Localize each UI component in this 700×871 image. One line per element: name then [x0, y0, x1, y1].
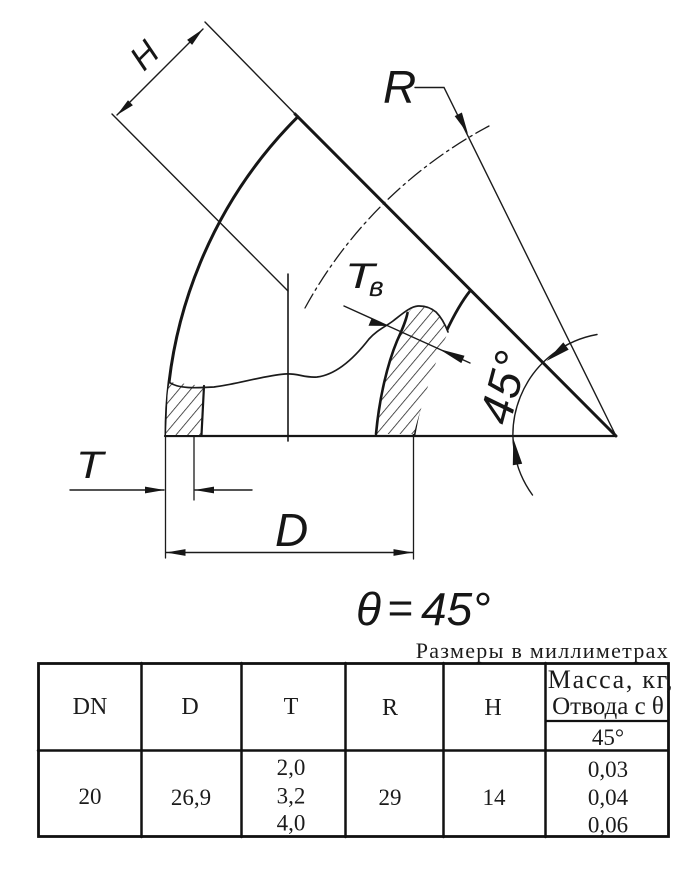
svg-text:R: R	[382, 695, 398, 721]
svg-text:θ: θ	[356, 583, 381, 635]
svg-text:Масса, кг,: Масса, кг,	[548, 665, 674, 694]
svg-text:Отвода с θ: Отвода с θ	[552, 693, 664, 720]
svg-text:4,0: 4,0	[277, 811, 306, 836]
svg-text:R: R	[383, 61, 416, 113]
svg-text:20: 20	[79, 784, 102, 809]
svg-text:D: D	[181, 694, 198, 720]
svg-text:45°: 45°	[421, 583, 491, 635]
svg-text:0,04: 0,04	[588, 785, 629, 810]
svg-text:45°: 45°	[592, 725, 624, 750]
svg-text:26,9: 26,9	[171, 785, 211, 810]
svg-text:DN: DN	[73, 694, 108, 720]
svg-text:в: в	[369, 271, 384, 302]
svg-text:45°: 45°	[469, 344, 538, 429]
svg-text:D: D	[275, 504, 308, 556]
svg-text:29: 29	[379, 785, 402, 810]
svg-text:=: =	[387, 584, 413, 633]
svg-text:14: 14	[483, 785, 507, 810]
svg-text:T: T	[76, 443, 106, 486]
svg-text:Размеры в миллиметрах: Размеры в миллиметрах	[416, 638, 669, 663]
svg-text:3,2: 3,2	[277, 784, 306, 809]
svg-text:2,0: 2,0	[277, 755, 306, 780]
svg-text:0,06: 0,06	[588, 813, 628, 838]
svg-text:0,03: 0,03	[588, 757, 628, 782]
svg-text:H: H	[484, 695, 501, 721]
svg-text:T: T	[284, 694, 299, 720]
